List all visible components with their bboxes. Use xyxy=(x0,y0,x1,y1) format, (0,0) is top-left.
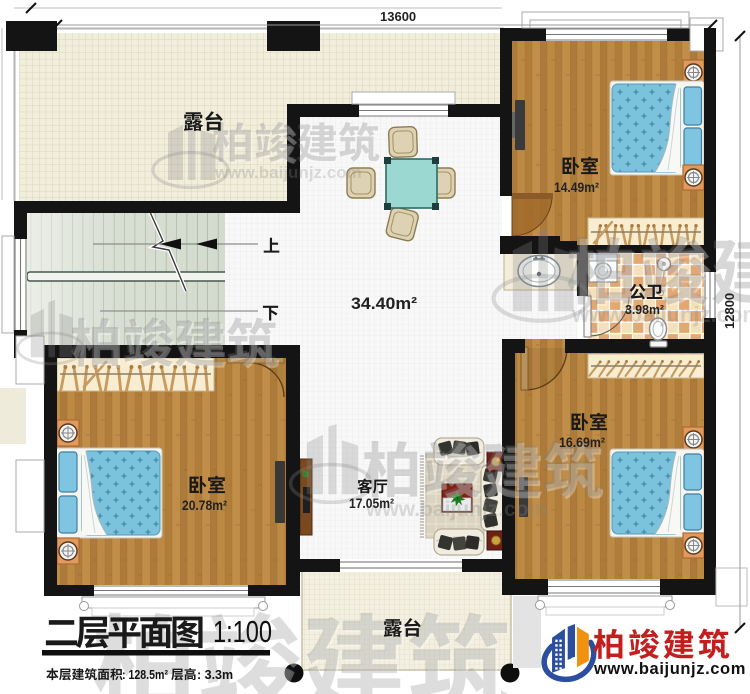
svg-text:16.69m²: 16.69m² xyxy=(559,435,605,450)
svg-text:17.05m²: 17.05m² xyxy=(349,496,394,511)
svg-text:34.40m²: 34.40m² xyxy=(351,295,418,313)
svg-text:14.49m²: 14.49m² xyxy=(554,180,599,195)
svg-text:www.baijunjz.com: www.baijunjz.com xyxy=(214,163,362,182)
svg-text:: 3.3m: : 3.3m xyxy=(197,668,233,682)
svg-text:1:100: 1:100 xyxy=(213,614,272,649)
svg-text:3.98m²: 3.98m² xyxy=(625,303,664,317)
svg-text:13600: 13600 xyxy=(380,9,416,24)
svg-text:www.baijunjz.com: www.baijunjz.com xyxy=(593,660,746,678)
svg-text:: 128.5m²: : 128.5m² xyxy=(122,668,168,682)
svg-text:20.78m²: 20.78m² xyxy=(182,498,227,513)
svg-text:12800: 12800 xyxy=(722,293,737,329)
